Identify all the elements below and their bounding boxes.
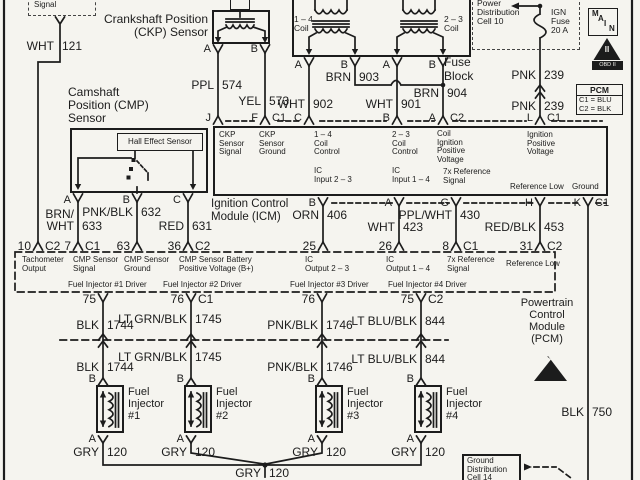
pcm-cell-7x-ref: 7x ReferenceSignal [447,256,495,273]
ckp-sensor-title: Crankshaft Position(CKP) Sensor [98,13,208,39]
coil-term-b2: B [373,59,513,71]
tachometer-box-text: TachometerSignal [34,0,76,9]
pcm-cell-ic23: ICOutput 2 – 3 [305,256,349,273]
ckp-term-b: B [195,43,335,55]
cmp-term-c: C [118,194,258,206]
icm-pin-k: KC1 [518,197,640,209]
wire-label-brn-904: BRN904 [358,87,528,99]
wire-label-pnk-239-lower: PNK239 [455,100,625,112]
fuel-injector-3-label: FuelInjector#3 [347,386,383,422]
wire-label-wht-121: WHT121 [0,40,143,52]
icm-cell-ref-low: Reference Low [510,183,564,192]
wire-label-red-631: RED631 [103,220,273,232]
wire-label-gry-120-i4: GRY120 [336,446,506,458]
fuel-injector-1-box [96,385,124,433]
icm-cell-ground: Ground [572,183,599,192]
icm-cell-ign-pos: IgnitionPositiveVoltage [527,131,555,157]
ckp-top-connector [230,0,250,10]
ground-distribution-label: GroundDistributionCell 14 [467,457,507,480]
pcm-pin-36: 36C2 [118,240,258,252]
icm-cell-ckp-ground: CKPSensorGround [259,131,286,157]
icm-cell-coil14: 1 – 4CoilControl [314,131,340,157]
icm-cell-7x-ref: 7x ReferenceSignal [443,168,491,185]
pcm-cell-driver4: Fuel Injector #4 Driver [388,281,467,290]
icm-cell-ic23: ICInput 2 – 3 [314,167,352,184]
pcm-cell-cmp-ground: CMP SensorGround [124,256,169,273]
pcm-cell-driver2: Fuel Injector #2 Driver [163,281,242,290]
inj4-term-b: B [351,373,491,385]
hall-effect-sensor-label: Hall Effect Sensor [119,138,201,147]
fuel-injector-4-box [414,385,442,433]
pcm-title: PowertrainControlModule(PCM) [518,297,576,345]
wire-label-blk-750: BLK750 [503,406,640,418]
wire-label-pnk-blk-632: PNK/BLK632 [52,206,222,218]
coil-2-3-label: 2 – 3Coil [444,15,463,33]
inj2-term-b: B [121,373,261,385]
icm-pin-l: LC1 [470,112,610,124]
pcm-pin-76a: 76C1 [121,293,261,305]
pcm-pin-31: 31C2 [470,240,610,252]
pcm-cell-driver3: Fuel Injector #3 Driver [290,281,369,290]
pcm-cell-cmp-batt: CMP Sensor BatteryPositive Voltage (B+) [179,256,253,273]
wire-label-ltblublk-844-lower: LT BLU/BLK844 [336,353,506,365]
fuel-injector-3-box [315,385,343,433]
icm-cell-coil23: 2 – 3CoilControl [392,131,418,157]
wire-label-ltblublk-844-upper: LT BLU/BLK844 [336,315,506,327]
icm-cell-ckp-signal: CKPSensorSignal [219,131,244,157]
wire-label-brn-903: BRN903 [270,71,440,83]
pcm-pin-75b: 75C2 [351,293,491,305]
wiring-diagram-page: M A I N II OBD II PCM C1 = BLU C2 = BLK … [0,0,640,480]
obd2-triangle-label: II [599,46,615,55]
pcm-cell-ic14: ICOutput 1 – 4 [386,256,430,273]
fuel-injector-4-label: FuelInjector#4 [446,386,482,422]
wire-label-red-blk-453: RED/BLK453 [455,221,625,233]
wire-label-gry-120-main: GRY120 [180,467,350,479]
pcm-cell-driver1: Fuel Injector #1 Driver [68,281,147,290]
ckp-sensor-box [212,10,270,44]
pcm-cell-ref-low: Reference Low [506,260,560,269]
ign-fuse-label: IGNFuse20 A [551,8,570,35]
cmp-sensor-title: CamshaftPosition (CMP)Sensor [68,86,149,125]
fuel-injector-2-box [184,385,212,433]
pcm-cell-cmp-signal: CMP SensorSignal [73,256,118,273]
fuel-injector-1-label: FuelInjector#1 [128,386,164,422]
power-distribution-label: PowerDistributionCell 10 [477,0,520,26]
inj4-term-a: A [351,433,491,445]
icm-cell-coil-ign: CoilIgnitionPositiveVoltage [437,130,465,164]
main-badge: M A I N [588,8,618,36]
inj2-term-a: A [121,433,261,445]
pcm-cell-tach: TachometerOutput [22,256,64,273]
coil-1-4-label: 1 – 4Coil [294,15,313,33]
fuel-injector-2-label: FuelInjector#2 [216,386,252,422]
icm-cell-ic14: ICInput 1 – 4 [392,167,430,184]
